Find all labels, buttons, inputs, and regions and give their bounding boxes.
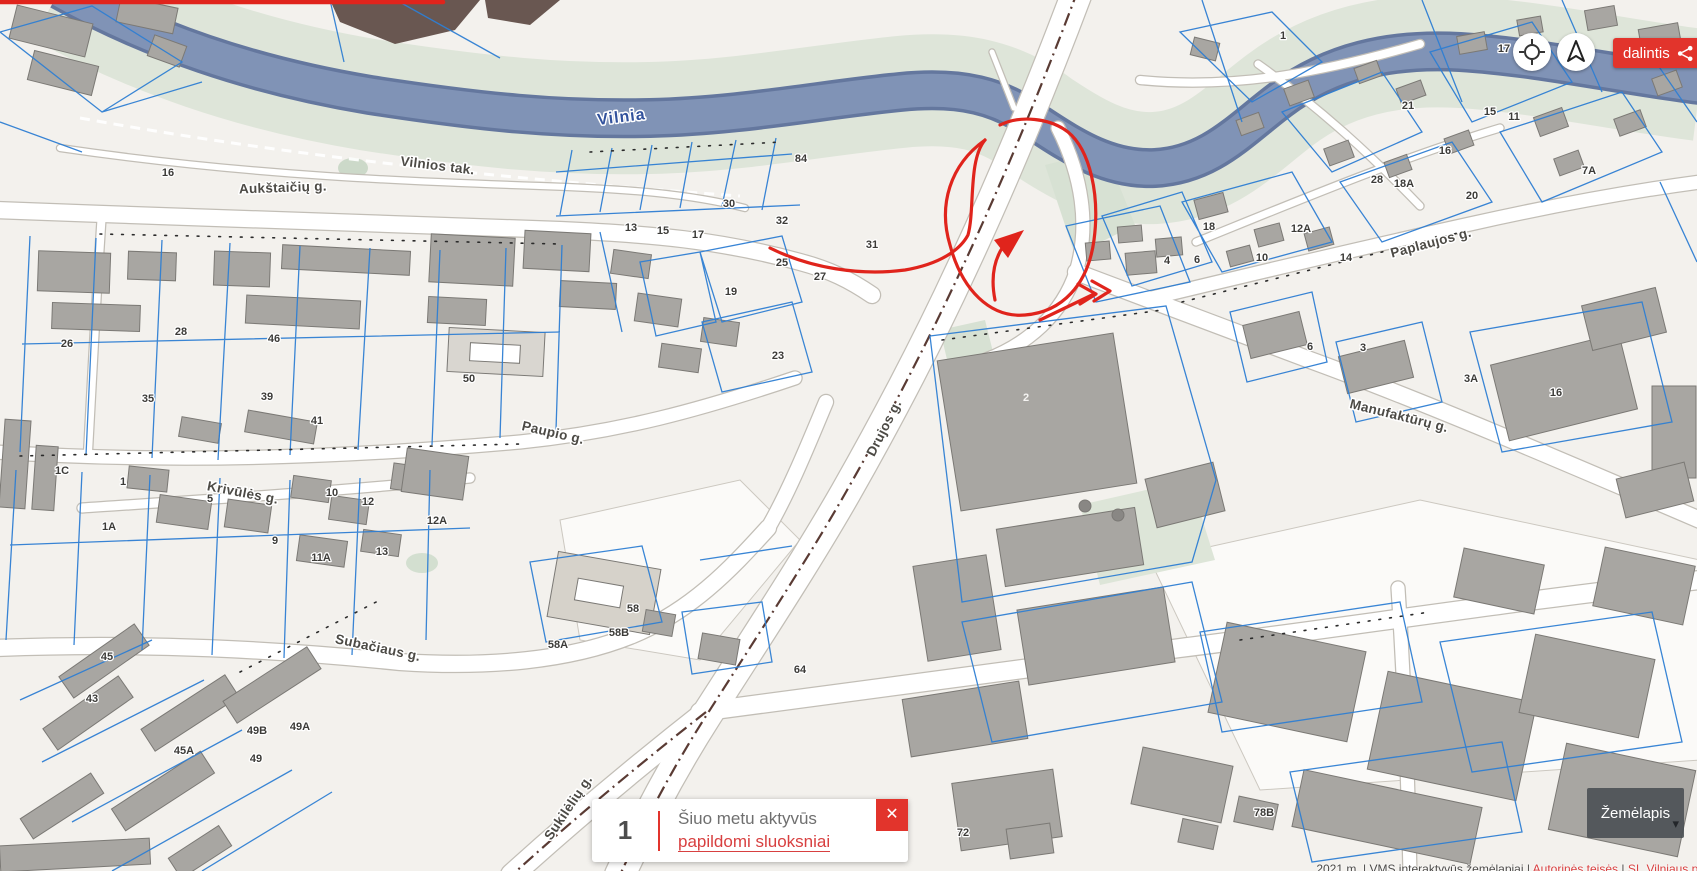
- share-icon: [1677, 45, 1694, 62]
- publisher-link[interactable]: SĮ „Vilniaus planas“: [1628, 862, 1697, 871]
- parcel-number: 46: [268, 333, 280, 345]
- parcel-number: 31: [866, 239, 878, 251]
- parcel-number: 10: [326, 487, 338, 499]
- compass-icon: [1561, 37, 1591, 67]
- parcel-number: 23: [772, 350, 784, 362]
- parcel-number: 3A: [1464, 373, 1478, 385]
- parcel-number: 19: [725, 286, 737, 298]
- parcel-number: 12: [362, 496, 374, 508]
- parcel-number: 15: [1484, 106, 1496, 118]
- parcel-number: 27: [814, 271, 826, 283]
- parcel-number: 1A: [102, 521, 116, 533]
- parcel-number: 12A: [427, 515, 447, 527]
- share-button[interactable]: dalintis: [1613, 38, 1697, 68]
- parcel-number: 49A: [290, 721, 310, 733]
- parcel-number: 39: [261, 391, 273, 403]
- attribution-prefix: 2021 m. | VMS interaktyvūs žemėlapiai |: [1316, 862, 1532, 871]
- active-layers-link[interactable]: papildomi sluoksniai: [678, 832, 830, 852]
- map-app: Vilnios tak.Aukštaičių g.Paupio g.Krivūl…: [0, 0, 1697, 871]
- notification-message: Šiuo metu aktyvūs: [678, 809, 817, 828]
- parcel-number: 28: [1371, 174, 1383, 186]
- parcel-number: 17: [1498, 43, 1510, 55]
- parcel-number: 26: [61, 338, 73, 350]
- parcel-number: 2: [1023, 392, 1029, 404]
- close-button[interactable]: ✕: [876, 799, 908, 831]
- parcel-number: 3: [1360, 342, 1366, 354]
- street-label: Aukštaičių g.: [239, 178, 327, 196]
- parcel-number: 84: [795, 153, 808, 165]
- parcel-number: 6: [1307, 341, 1313, 353]
- parcel-number: 16: [1550, 387, 1562, 399]
- parcel-number: 58: [627, 603, 639, 615]
- parcel-number: 28: [175, 326, 187, 338]
- parcel-number: 30: [723, 198, 735, 210]
- parcel-number: 7A: [1582, 165, 1596, 177]
- parcel-number: 45A: [174, 745, 194, 757]
- close-icon: ✕: [885, 806, 898, 823]
- parcel-number: 13: [625, 222, 637, 234]
- copyright-link[interactable]: Autorinės teisės: [1533, 862, 1618, 871]
- parcel-number: 1: [1280, 30, 1286, 42]
- parcel-number: 1: [120, 476, 126, 488]
- parcel-number: 13: [376, 546, 388, 558]
- parcel-number: 10: [1256, 252, 1268, 264]
- parcel-number: 25: [776, 257, 788, 269]
- parcel-number: 1C: [55, 465, 69, 477]
- map-controls: dalintis: [1513, 33, 1697, 71]
- parcel-number: 41: [311, 415, 323, 427]
- parcel-number: 16: [162, 167, 174, 179]
- parcel-number: 9: [272, 535, 278, 547]
- parcel-number: 15: [657, 225, 669, 237]
- parcel-number: 18A: [1394, 178, 1414, 190]
- parcel-number: 35: [142, 393, 154, 405]
- locate-icon: [1517, 37, 1547, 67]
- parcel-number: 78B: [1254, 807, 1274, 819]
- parcel-number: 21: [1402, 100, 1414, 112]
- active-layers-count: 1: [592, 815, 658, 846]
- parcel-number: 20: [1466, 190, 1478, 202]
- parcel-number: 49: [250, 753, 262, 765]
- notification-text: Šiuo metu aktyvūs papildomi sluoksniai: [660, 808, 908, 854]
- parcel-number: 5: [207, 493, 213, 505]
- parcel-number: 58A: [548, 639, 568, 651]
- parcel-number: 14: [1340, 252, 1353, 264]
- parcel-number: 18: [1203, 221, 1215, 233]
- chevron-down-icon: ▾: [1672, 816, 1679, 832]
- parcel-number: 49B: [247, 725, 267, 737]
- locate-button[interactable]: [1513, 33, 1551, 71]
- basemap-button-label: Žemėlapis: [1601, 805, 1670, 822]
- parcel-number: 17: [692, 229, 704, 241]
- parcel-number: 16: [1439, 145, 1451, 157]
- parcel-number: 11A: [311, 552, 331, 564]
- parcel-number: 50: [463, 373, 475, 385]
- parcel-number: 4: [1164, 255, 1171, 267]
- share-button-label: dalintis: [1623, 45, 1670, 62]
- parcel-number: 43: [86, 693, 98, 705]
- parcel-number: 58B: [609, 627, 629, 639]
- parcel-number: 12A: [1291, 223, 1311, 235]
- attribution: 2021 m. | VMS interaktyvūs žemėlapiai | …: [1316, 862, 1697, 871]
- parcel-number: 64: [794, 664, 807, 676]
- attribution-separator: |: [1618, 862, 1628, 871]
- active-layers-notification: 1 Šiuo metu aktyvūs papildomi sluoksniai…: [592, 799, 908, 862]
- parcel-number: 72: [957, 827, 969, 839]
- parcel-number: 11: [1508, 111, 1520, 123]
- compass-button[interactable]: [1557, 33, 1595, 71]
- parcel-number: 6: [1194, 254, 1200, 266]
- map-canvas[interactable]: Vilnios tak.Aukštaičių g.Paupio g.Krivūl…: [0, 0, 1697, 871]
- parcel-number: 45: [101, 651, 113, 663]
- parcel-number: 32: [776, 215, 788, 227]
- basemap-button[interactable]: Žemėlapis ▾: [1587, 788, 1684, 838]
